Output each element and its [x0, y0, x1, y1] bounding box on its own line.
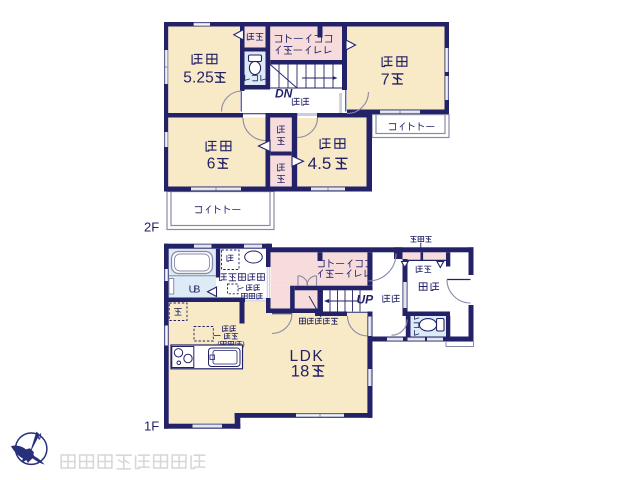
svg-text:6: 6: [207, 156, 216, 173]
svg-text:1F: 1F: [144, 419, 159, 434]
svg-text:5.25: 5.25: [183, 70, 213, 87]
svg-text:2F: 2F: [144, 220, 159, 235]
svg-text:UB: UB: [189, 283, 201, 295]
svg-text:DN: DN: [275, 87, 293, 101]
svg-text:4.5: 4.5: [308, 154, 332, 173]
svg-text:18: 18: [291, 362, 310, 380]
svg-text:N: N: [35, 432, 42, 442]
svg-text:7: 7: [381, 71, 390, 88]
svg-text:UP: UP: [357, 293, 375, 307]
